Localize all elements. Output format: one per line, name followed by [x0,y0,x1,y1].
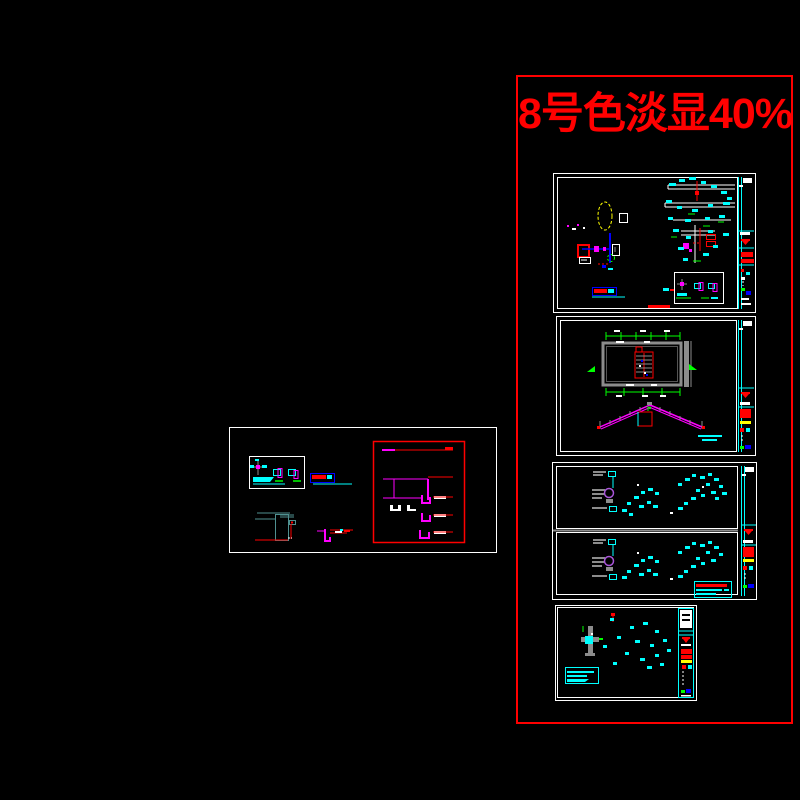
drawing-sheet-1[interactable] [553,173,756,313]
pipe-detail-box [311,474,353,485]
sheet3-lower-schematic [592,539,732,598]
section-callout-box [374,442,465,543]
scatter-marks [603,618,671,669]
sheet2-note-label [698,435,722,441]
cad-canvas: { "overlay": { "annotation": "8号色淡显40%" … [0,0,800,800]
schedule-table [695,582,732,598]
wall-section-detail [255,513,296,541]
sheet2-title-block [738,320,754,452]
sheet2-roof-elevation [597,402,705,429]
green-annotation-marks [671,214,724,261]
sheet4-title-block [679,609,695,698]
sheet1-title-block [738,177,754,309]
sheet1-plan-items [567,202,674,308]
scatter-marks-upper [622,473,727,516]
legend-box [250,457,305,489]
base-detail [317,529,353,541]
stair-detail [635,347,653,378]
drawing-sheet-4[interactable] [555,605,697,701]
red-highlight-frame[interactable]: 8号色淡显40% [516,75,793,724]
detail-drawing-graphics [230,428,494,550]
note-table [566,668,599,684]
sheet3-upper-schematic [592,471,727,516]
sheet3-title-block [741,466,756,596]
fade-annotation-label: 8号色淡显40% [518,92,791,137]
cyan-annotation-marks [666,177,732,261]
drawing-sheet-3[interactable] [552,462,757,600]
sheet1-piping-cluster [665,177,735,263]
drawing-sheet-2[interactable] [556,316,756,456]
scatter-marks-lower [622,541,723,580]
sheet1-border [554,174,756,313]
sheet1-legend-box [675,273,724,304]
sheet4-plan-content [566,613,672,684]
sheet3-border [553,463,757,600]
detail-drawing-frame[interactable] [229,427,497,553]
sheet2-floor-plan [587,330,697,397]
